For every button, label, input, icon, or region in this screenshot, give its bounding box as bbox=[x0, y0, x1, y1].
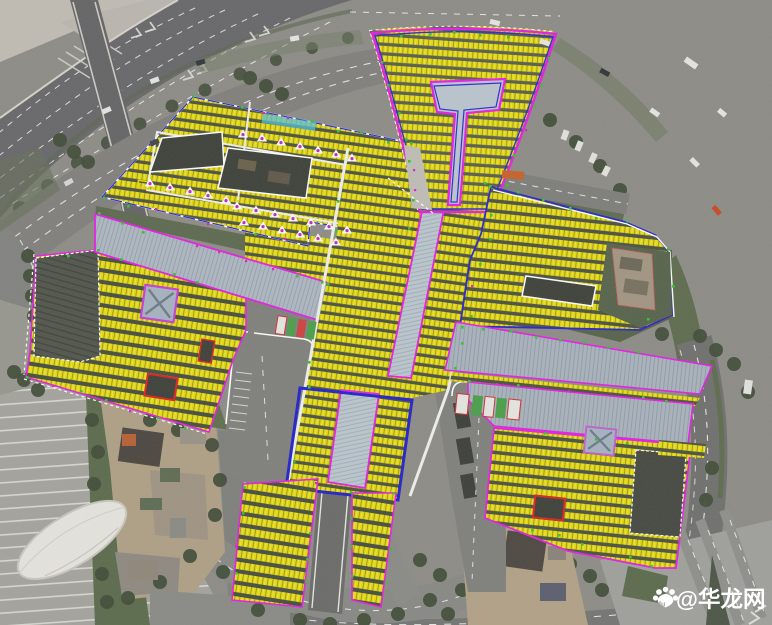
svg-text:@华龙网: @华龙网 bbox=[676, 586, 765, 612]
svg-text:du: du bbox=[657, 602, 666, 609]
